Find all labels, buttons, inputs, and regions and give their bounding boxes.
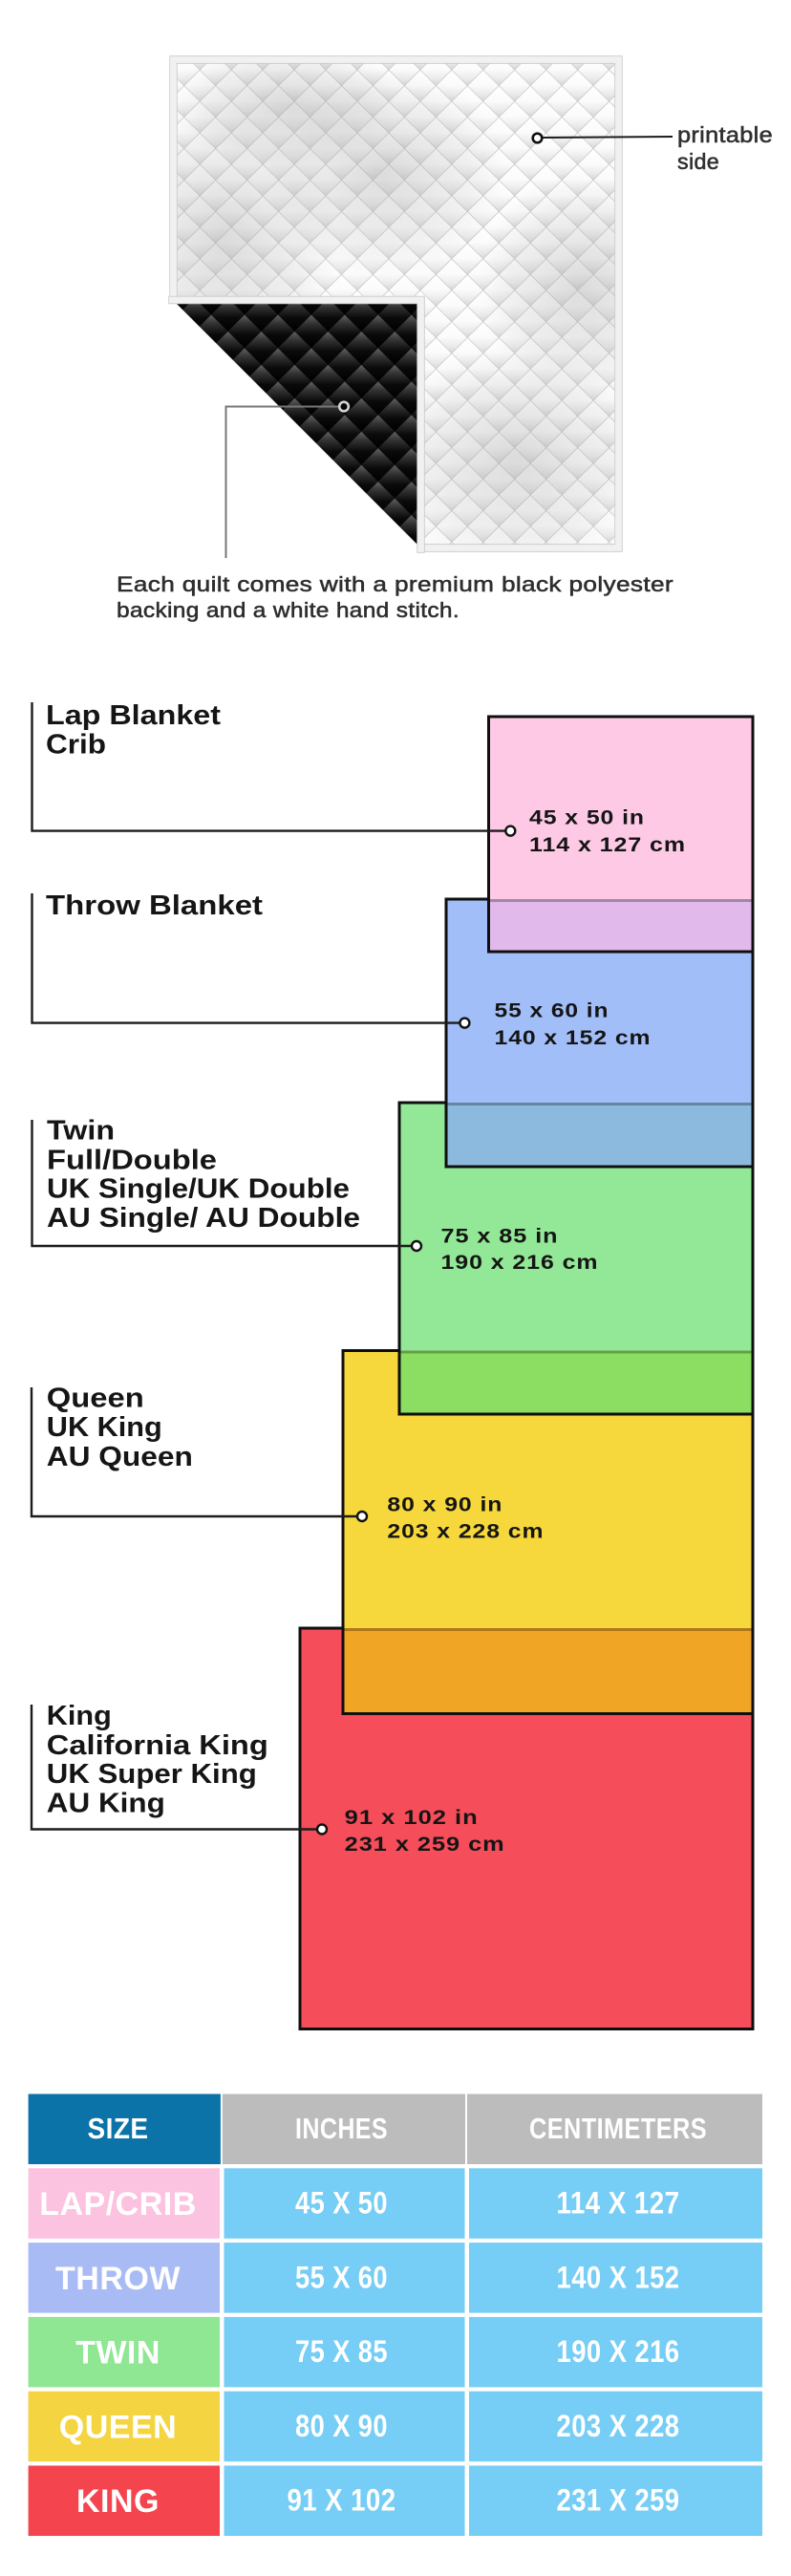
svg-text:Throw Blanket: Throw Blanket [46, 891, 263, 921]
svg-text:KING: KING [76, 2483, 160, 2520]
svg-text:55 X 60: 55 X 60 [295, 2260, 388, 2294]
svg-text:AU Queen: AU Queen [47, 1442, 193, 1472]
svg-text:190 x 216 cm: 190 x 216 cm [441, 1252, 599, 1274]
svg-text:Queen: Queen [47, 1384, 144, 1414]
svg-text:SIZE: SIZE [88, 2112, 149, 2145]
svg-text:side: side [677, 149, 719, 174]
svg-text:203 X 228: 203 X 228 [557, 2409, 680, 2443]
svg-text:CENTIMETERS: CENTIMETERS [529, 2112, 707, 2145]
svg-text:55 x 60 in: 55 x 60 in [495, 1000, 609, 1022]
svg-text:UK King: UK King [47, 1412, 162, 1443]
svg-text:AU Single/ AU Double: AU Single/ AU Double [47, 1203, 360, 1234]
svg-text:45 X 50: 45 X 50 [295, 2186, 388, 2221]
svg-text:114 X 127: 114 X 127 [557, 2186, 680, 2221]
svg-text:80 X 90: 80 X 90 [295, 2409, 388, 2443]
svg-text:AU King: AU King [47, 1789, 165, 1819]
svg-text:75 X 85: 75 X 85 [295, 2334, 388, 2369]
svg-text:TWIN: TWIN [75, 2335, 160, 2372]
svg-text:INCHES: INCHES [295, 2112, 388, 2145]
svg-text:231 X 259: 231 X 259 [557, 2483, 680, 2518]
svg-text:91 X 102: 91 X 102 [288, 2483, 396, 2518]
svg-text:QUEEN: QUEEN [59, 2409, 177, 2445]
svg-text:91 x 102 in: 91 x 102 in [345, 1807, 479, 1829]
svg-text:140 X 152: 140 X 152 [557, 2260, 680, 2294]
svg-text:80 x 90 in: 80 x 90 in [387, 1494, 502, 1516]
svg-text:Twin: Twin [47, 1116, 115, 1147]
svg-text:114 x 127 cm: 114 x 127 cm [529, 834, 686, 856]
svg-text:UK Single/UK Double: UK Single/UK Double [47, 1174, 350, 1205]
svg-text:printable: printable [677, 122, 773, 147]
svg-text:California King: California King [47, 1730, 268, 1761]
svg-text:LAP/CRIB: LAP/CRIB [39, 2186, 197, 2222]
svg-text:Full/Double: Full/Double [47, 1145, 217, 1175]
svg-text:Lap Blanket: Lap Blanket [46, 700, 221, 731]
svg-text:190 X 216: 190 X 216 [557, 2334, 680, 2369]
svg-text:45 x 50 in: 45 x 50 in [529, 807, 645, 829]
svg-text:203 x 228 cm: 203 x 228 cm [387, 1521, 544, 1543]
svg-text:75 x 85 in: 75 x 85 in [441, 1225, 559, 1247]
svg-text:THROW: THROW [55, 2261, 181, 2297]
svg-text:Each quilt comes with a premiu: Each quilt comes with a premium black po… [117, 572, 673, 596]
svg-text:UK Super King: UK Super King [47, 1759, 257, 1790]
svg-text:Crib: Crib [46, 730, 106, 761]
svg-text:140 x 152 cm: 140 x 152 cm [495, 1027, 652, 1049]
svg-text:King: King [47, 1701, 112, 1731]
svg-text:backing and a white hand stitc: backing and a white hand stitch. [117, 598, 460, 622]
svg-text:231 x 259 cm: 231 x 259 cm [345, 1834, 505, 1856]
